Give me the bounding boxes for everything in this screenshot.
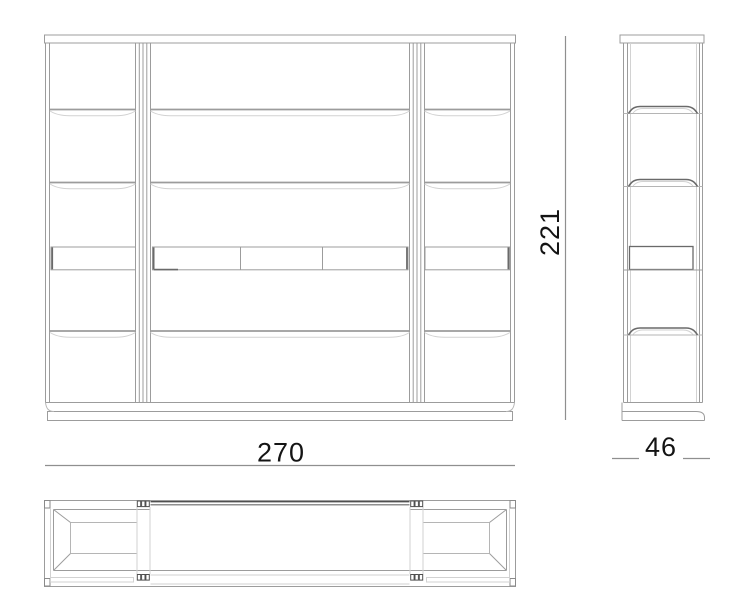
technical-drawing-page: 270 221 46 <box>0 0 752 610</box>
front-left-drawer <box>51 247 136 270</box>
side-shelves <box>624 107 703 336</box>
top-view <box>45 501 516 587</box>
side-drawer <box>624 247 703 271</box>
depth-dimension: 46 <box>612 432 710 462</box>
height-dimension-label: 221 <box>535 208 565 256</box>
front-side-panels <box>46 43 515 403</box>
side-frame <box>624 43 703 403</box>
width-dimension-label: 270 <box>257 438 305 468</box>
front-drawers <box>51 247 510 270</box>
front-shelves <box>50 110 510 338</box>
front-right-drawer <box>425 247 510 270</box>
side-view <box>620 35 705 421</box>
side-plinth <box>622 403 705 421</box>
width-dimension: 270 <box>45 438 515 468</box>
height-dimension: 221 <box>535 36 566 420</box>
front-right-pillar <box>410 43 425 403</box>
front-view <box>45 35 516 421</box>
depth-dimension-label: 46 <box>645 432 677 462</box>
front-center-drawers <box>153 247 409 270</box>
front-top-panel <box>45 35 516 43</box>
plan-outline <box>45 501 516 587</box>
front-plinth <box>46 403 515 421</box>
furniture-dimension-drawing: 270 221 46 <box>0 0 752 610</box>
front-left-pillar <box>136 43 151 403</box>
side-top-panel <box>620 35 704 43</box>
